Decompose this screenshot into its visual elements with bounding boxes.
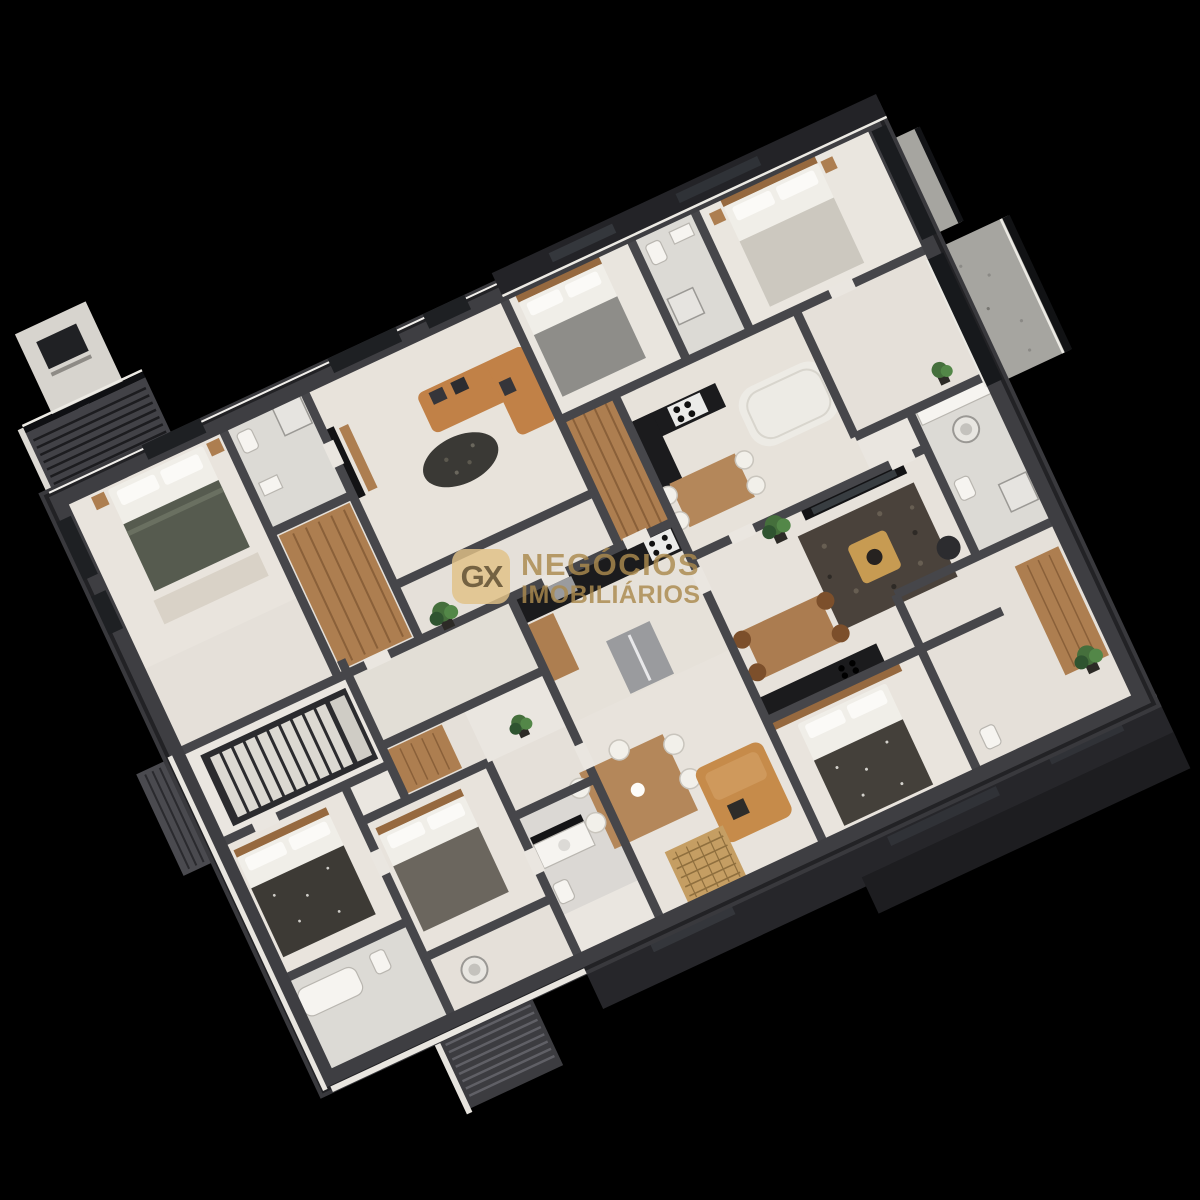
floorplan-canvas (0, 0, 1200, 1200)
floorplan-render: GX NEGÓCIOS IMOBILIÁRIOS (0, 0, 1200, 1200)
